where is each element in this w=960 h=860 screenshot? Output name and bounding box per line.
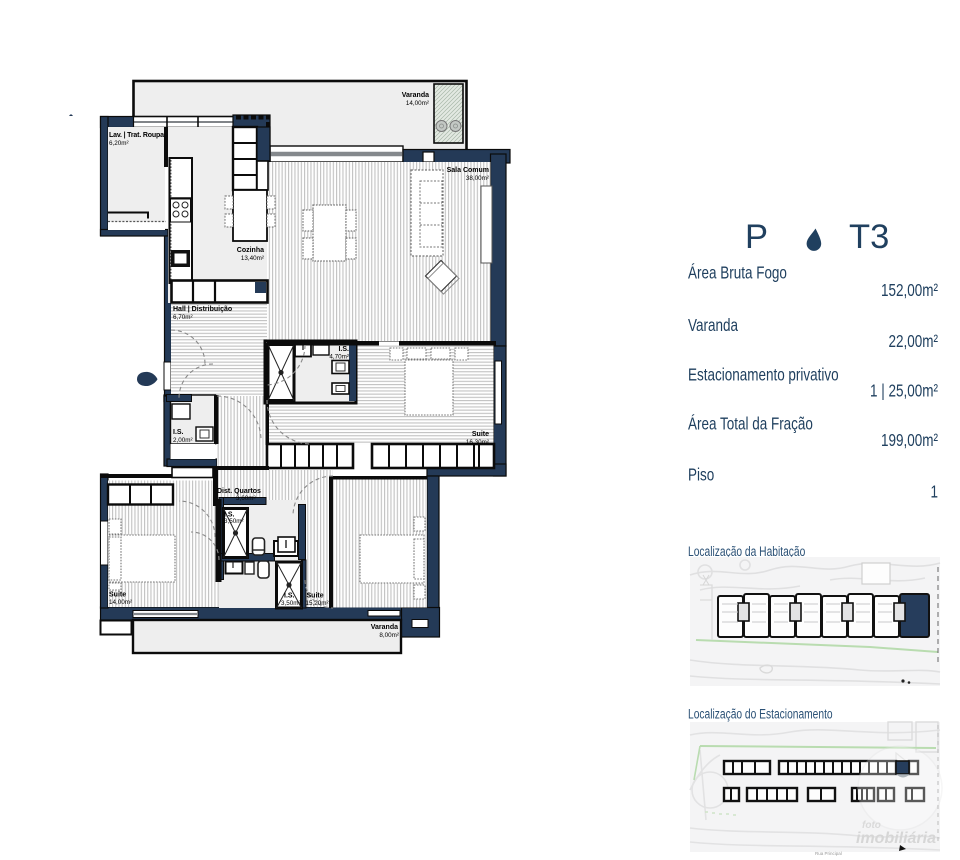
svg-text:14,00m²: 14,00m² [109,599,132,606]
svg-text:Estacionamento privativo: Estacionamento privativo [688,366,839,385]
svg-text:13,40m²: 13,40m² [241,255,264,262]
svg-text:Dist. Quartos: Dist. Quartos [217,488,261,495]
svg-text:I.S.: I.S. [173,429,184,436]
svg-text:I.S.: I.S. [338,346,349,353]
svg-text:P: P [745,218,768,256]
svg-text:38,00m²: 38,00m² [466,175,489,182]
svg-text:Sala Comum: Sala Comum [447,167,489,174]
svg-text:Rua Principal: Rua Principal [815,851,842,856]
svg-text:Lav. | Trat. Roupa: Lav. | Trat. Roupa [109,132,164,139]
svg-text:Cozinha: Cozinha [237,247,264,254]
svg-text:Localização do Estacionamento: Localização do Estacionamento [688,706,833,722]
svg-text:Suite: Suite [307,593,324,600]
svg-text:3,50m²: 3,50m² [281,600,301,607]
svg-text:Varanda: Varanda [688,316,738,335]
svg-text:4,70m²: 4,70m² [329,354,349,361]
svg-text:Varanda: Varanda [402,92,429,99]
svg-text:Suite: Suite [472,431,489,438]
svg-text:I.S.: I.S. [284,593,295,600]
svg-text:Piso: Piso [688,466,714,485]
svg-text:3,60m²: 3,60m² [236,495,256,502]
svg-text:1: 1 [930,483,938,502]
svg-text:Área Total da Fração: Área Total da Fração [688,413,813,434]
svg-text:Suite: Suite [109,592,126,599]
svg-text:199,00m²: 199,00m² [881,431,938,450]
svg-text:15,20m²: 15,20m² [306,600,329,607]
svg-text:Varanda: Varanda [371,624,398,631]
svg-text:Área Bruta Fogo: Área Bruta Fogo [688,262,787,283]
svg-text:Hall | Distribuição: Hall | Distribuição [173,306,232,313]
svg-text:6,20m²: 6,20m² [109,140,129,147]
svg-text:1 | 25,00m²: 1 | 25,00m² [870,382,938,401]
svg-text:14,00m²: 14,00m² [406,100,429,107]
svg-text:16,30m²: 16,30m² [466,439,489,446]
svg-text:6,70m²: 6,70m² [173,314,193,321]
svg-text:152,00m²: 152,00m² [881,281,938,300]
svg-text:8,00m²: 8,00m² [379,632,399,639]
svg-text:imobiliária: imobiliária [856,830,936,847]
svg-text:22,00m²: 22,00m² [889,332,938,351]
svg-text:3,50m²: 3,50m² [224,518,244,525]
svg-text:2,00m²: 2,00m² [173,437,193,444]
svg-text:T3: T3 [849,218,889,256]
